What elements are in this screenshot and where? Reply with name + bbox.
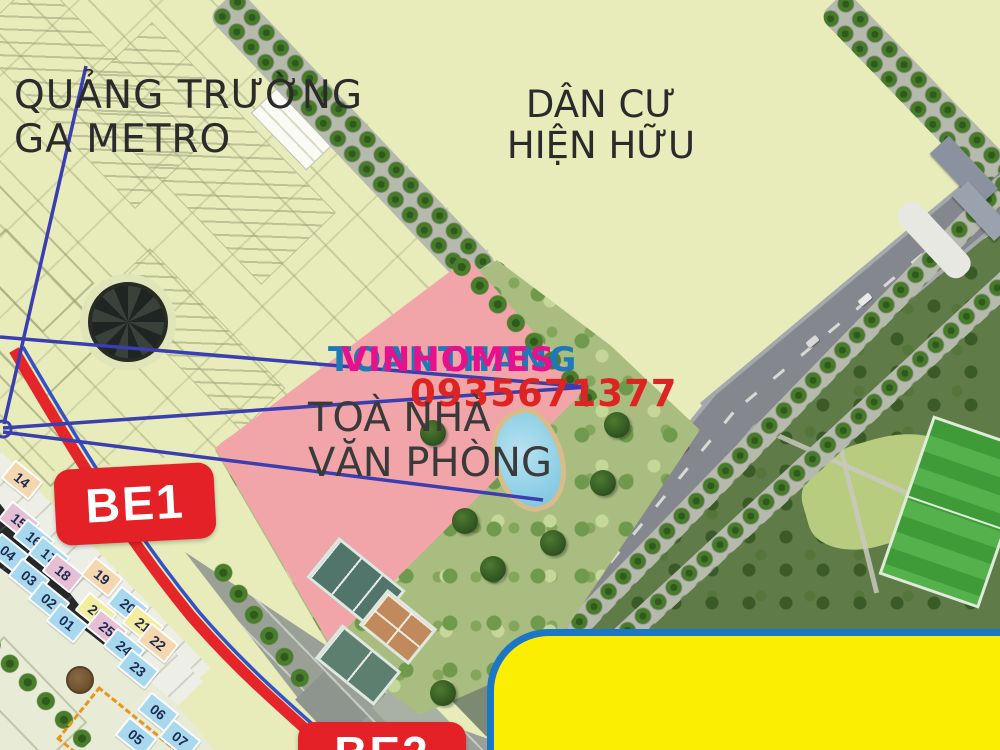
metro-square-label: QUẢNG TRƯỜNG GA METRO — [14, 74, 363, 161]
existing-residential-label: DÂN CƯ HIỆN HỮU — [470, 84, 732, 167]
metro-square-label-line1: QUẢNG TRƯỜNG — [14, 74, 363, 118]
metro-square-label-line2: GA METRO — [14, 118, 363, 162]
zone-label-be2-text: BE2 — [334, 726, 429, 750]
unit-box-14: 14 — [0, 459, 43, 500]
zone-label-be2: BE2 — [298, 722, 466, 750]
office-building-label-line2: VĂN PHÒNG — [308, 441, 552, 486]
zone-label-be1: BE1 — [53, 462, 217, 546]
existing-residential-label-line1: DÂN CƯ — [470, 84, 732, 125]
masterplan-map: 1415161718040302011920262521242223060507… — [0, 0, 1000, 750]
highlight-panel — [487, 629, 1000, 750]
zone-label-be1-text: BE1 — [84, 474, 186, 534]
office-building-label: TOÀ NHÀ VĂN PHÒNG — [308, 396, 552, 486]
existing-residential-label-line2: HIỆN HỮU — [470, 125, 732, 166]
office-building-label-line1: TOÀ NHÀ — [308, 396, 552, 441]
watermark-line: TOANTHANG VINHOMES — [328, 340, 341, 380]
